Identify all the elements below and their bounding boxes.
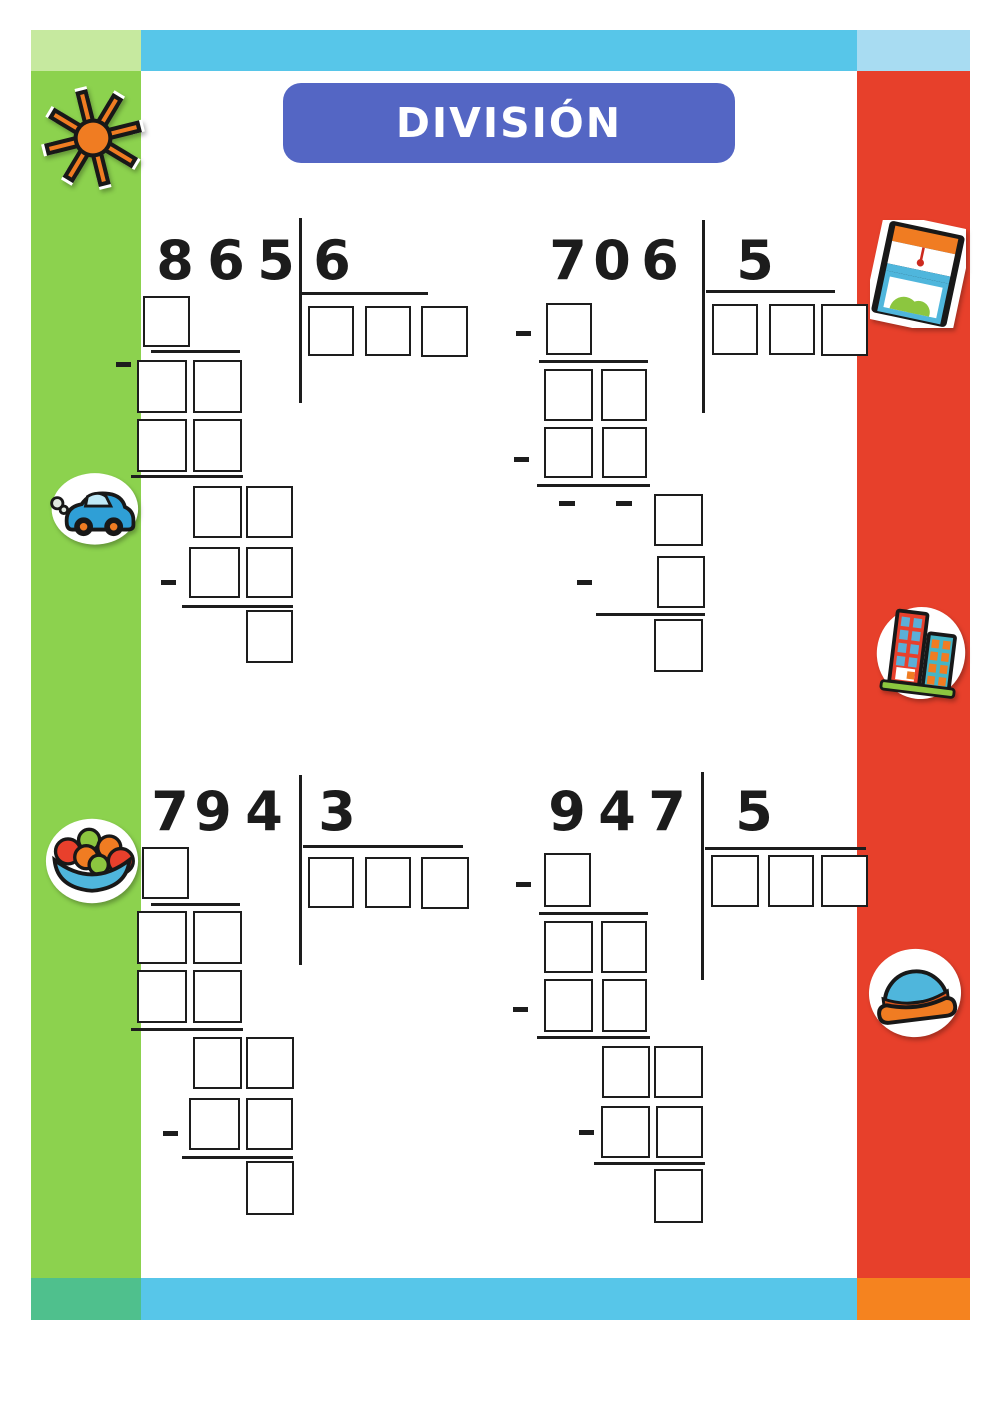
quotient-line xyxy=(706,290,835,293)
subtraction-line xyxy=(539,360,648,363)
dividend-digit: 8 xyxy=(153,237,197,285)
quotient-line xyxy=(303,845,463,848)
dividend-digit: 0 xyxy=(590,237,634,285)
answer-box[interactable] xyxy=(544,979,593,1032)
worksheet-title: DIVISIÓN xyxy=(283,83,735,163)
minus-sign xyxy=(514,457,529,462)
minus-sign xyxy=(577,580,592,585)
minus-sign xyxy=(579,1130,594,1135)
answer-box[interactable] xyxy=(544,853,591,907)
dividend-digit: 4 xyxy=(242,788,286,836)
answer-box[interactable] xyxy=(544,369,593,421)
division-bar xyxy=(701,772,704,980)
subtraction-line xyxy=(131,475,243,478)
subtraction-line xyxy=(537,1036,650,1039)
answer-box[interactable] xyxy=(137,419,187,472)
dividend-digit: 5 xyxy=(254,237,298,285)
answer-box[interactable] xyxy=(246,486,293,538)
car-sticker xyxy=(46,466,140,548)
answer-box[interactable] xyxy=(657,556,705,608)
answer-box[interactable] xyxy=(654,1046,703,1098)
answer-box[interactable] xyxy=(143,296,190,347)
division-bar xyxy=(299,775,302,965)
answer-box[interactable] xyxy=(654,494,703,546)
answer-box[interactable] xyxy=(712,304,758,355)
answer-box[interactable] xyxy=(601,369,647,421)
divisor-digit: 6 xyxy=(310,237,354,285)
answer-box[interactable] xyxy=(365,306,411,356)
answer-box[interactable] xyxy=(769,304,815,355)
answer-box[interactable] xyxy=(189,547,240,598)
answer-box[interactable] xyxy=(189,1098,240,1150)
subtraction-line xyxy=(594,1162,705,1165)
answer-box[interactable] xyxy=(602,1046,650,1098)
dividend-digit: 7 xyxy=(645,788,689,836)
minus-sign xyxy=(161,580,176,585)
answer-box[interactable] xyxy=(421,306,468,357)
answer-box[interactable] xyxy=(246,1098,293,1150)
subtraction-line xyxy=(151,350,240,353)
answer-box[interactable] xyxy=(193,360,242,413)
sofa-sticker xyxy=(866,944,964,1042)
subtraction-line xyxy=(131,1028,243,1031)
frame-top-bar xyxy=(141,30,857,71)
answer-box[interactable] xyxy=(768,855,814,907)
minus-sign xyxy=(116,362,131,367)
frame-top-right-cap xyxy=(857,30,970,71)
answer-box[interactable] xyxy=(193,970,242,1023)
answer-box[interactable] xyxy=(654,1169,703,1223)
minus-sign xyxy=(513,1007,528,1012)
worksheet-page: DIVISIÓN 8 6 5 6 7 0 6 5 xyxy=(0,0,1000,1413)
answer-box[interactable] xyxy=(821,855,868,907)
dividend-digit: 6 xyxy=(204,237,248,285)
answer-box[interactable] xyxy=(193,419,242,472)
minus-sign xyxy=(516,331,531,336)
dividend-digit: 7 xyxy=(546,237,590,285)
answer-box[interactable] xyxy=(137,911,187,964)
frame-bottom-left-cap xyxy=(31,1278,141,1320)
dividend-digit: 6 xyxy=(638,237,682,285)
answer-box[interactable] xyxy=(544,921,593,973)
buildings-sticker xyxy=(874,602,968,704)
answer-box[interactable] xyxy=(308,306,354,356)
answer-box[interactable] xyxy=(602,979,647,1032)
answer-box[interactable] xyxy=(246,547,293,598)
answer-box[interactable] xyxy=(601,1106,650,1158)
answer-box[interactable] xyxy=(421,857,469,909)
answer-box[interactable] xyxy=(544,427,593,478)
answer-box[interactable] xyxy=(193,486,242,538)
dividend-digit: 7 xyxy=(148,788,192,836)
answer-box[interactable] xyxy=(546,303,592,355)
answer-box[interactable] xyxy=(193,911,242,964)
answer-box[interactable] xyxy=(246,610,293,663)
subtraction-line xyxy=(537,484,650,487)
frame-bottom-right-cap xyxy=(857,1278,970,1320)
fruit-bowl-sticker xyxy=(44,813,140,909)
subtraction-line xyxy=(596,613,705,616)
answer-box[interactable] xyxy=(601,921,647,973)
divisor-digit: 5 xyxy=(733,237,777,285)
answer-box[interactable] xyxy=(654,619,703,672)
dividend-digit: 9 xyxy=(191,788,235,836)
subtraction-line xyxy=(539,912,648,915)
division-bar xyxy=(299,218,302,403)
sun-sticker xyxy=(40,84,146,192)
dividend-digit: 4 xyxy=(595,788,639,836)
division-bar xyxy=(702,220,705,413)
answer-box[interactable] xyxy=(602,427,647,478)
subtraction-line xyxy=(182,605,293,608)
subtraction-line xyxy=(182,1156,293,1159)
frame-top-left-cap xyxy=(31,30,141,71)
worksheet-title-text: DIVISIÓN xyxy=(396,99,622,147)
window-sticker xyxy=(870,220,966,328)
dash-mark xyxy=(616,501,632,506)
answer-box[interactable] xyxy=(711,855,759,907)
subtraction-line xyxy=(151,903,240,906)
divisor-digit: 3 xyxy=(315,788,359,836)
answer-box[interactable] xyxy=(137,360,187,413)
answer-box[interactable] xyxy=(365,857,411,908)
answer-box[interactable] xyxy=(193,1037,242,1089)
answer-box[interactable] xyxy=(142,847,189,899)
answer-box[interactable] xyxy=(246,1161,294,1215)
answer-box[interactable] xyxy=(308,857,354,908)
quotient-line xyxy=(302,292,428,295)
minus-sign xyxy=(516,882,531,887)
dividend-digit: 9 xyxy=(545,788,589,836)
frame-left-band xyxy=(31,71,141,1278)
minus-sign xyxy=(163,1131,178,1136)
quotient-line xyxy=(705,847,866,850)
dash-mark xyxy=(559,501,575,506)
answer-box[interactable] xyxy=(821,304,868,356)
divisor-digit: 5 xyxy=(732,788,776,836)
frame-bottom-bar xyxy=(141,1278,857,1320)
answer-box[interactable] xyxy=(246,1037,294,1089)
answer-box[interactable] xyxy=(137,970,187,1023)
answer-box[interactable] xyxy=(656,1106,703,1158)
